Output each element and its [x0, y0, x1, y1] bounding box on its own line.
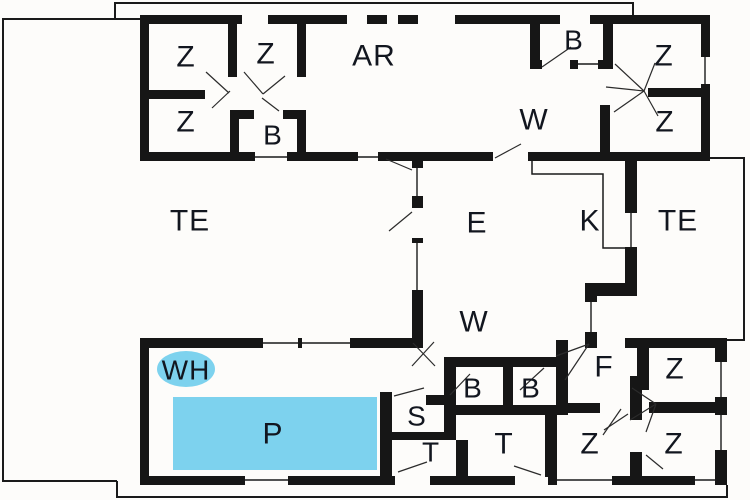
wall-segment	[298, 338, 302, 348]
wall-segment	[528, 152, 710, 161]
wall-segment	[701, 15, 710, 57]
label-room-s: S	[407, 401, 427, 432]
wall-segment	[570, 60, 578, 69]
wall-segment	[367, 15, 387, 24]
wall-segment	[648, 88, 701, 97]
label-kitchen-k: K	[579, 205, 600, 238]
wall-segment	[585, 296, 597, 302]
wall-segment	[297, 110, 306, 152]
wall-segment	[625, 158, 637, 213]
wall-segment	[557, 403, 600, 413]
wall-segment	[530, 60, 542, 69]
wall-segment	[287, 152, 358, 161]
wall-segment	[350, 338, 423, 348]
label-toilet-t1: T	[422, 437, 440, 468]
wall-segment	[412, 238, 423, 243]
wall-segment	[140, 476, 245, 485]
wall-segment	[456, 440, 468, 485]
label-terrace-te2: TE	[658, 205, 698, 238]
label-bedroom-z8: Z	[664, 428, 683, 461]
wall-segment	[297, 24, 306, 77]
wall-segment	[717, 476, 727, 485]
wall-segment	[612, 476, 695, 485]
wall-segment	[140, 338, 149, 485]
label-toilet-t2: T	[494, 428, 513, 461]
wall-segment	[149, 90, 205, 99]
wall-segment	[380, 432, 456, 440]
label-bedroom-z7: Z	[665, 353, 684, 386]
wall-segment	[637, 338, 649, 390]
wall-segment	[701, 84, 710, 161]
wall-segment	[545, 413, 557, 477]
label-bath-b2: B	[564, 25, 584, 56]
wall-segment	[548, 476, 557, 485]
label-entry-e: E	[466, 207, 487, 240]
label-bedroom-z3: Z	[176, 106, 195, 139]
wall-segment	[140, 15, 149, 161]
label-bedroom-z4: Z	[654, 40, 673, 73]
wall-segment	[430, 476, 515, 485]
label-bath-b4: B	[521, 373, 541, 404]
wall-segment	[625, 247, 637, 283]
label-bath-b3: B	[463, 373, 483, 404]
label-pool-p: P	[262, 418, 283, 451]
label-terrace-te1: TE	[170, 205, 210, 238]
label-bedroom-z1: Z	[176, 41, 195, 74]
label-whirlpool-wh: WH	[162, 355, 211, 386]
wall-segment	[412, 152, 423, 168]
label-bedroom-z6: Z	[580, 428, 599, 461]
label-bedroom-z2: Z	[256, 38, 275, 71]
wall-segment	[398, 15, 418, 24]
wall-segment	[590, 15, 710, 24]
wall-segment	[228, 24, 237, 77]
wall-segment	[715, 338, 727, 362]
floor-plan-page: Z Z AR Z B B Z Z W TE E K TE W WH P S T …	[0, 0, 750, 500]
wall-segment	[649, 402, 723, 413]
wall-segment	[503, 357, 513, 407]
label-room-ar: AR	[352, 40, 396, 73]
label-bath-b1: B	[263, 120, 283, 151]
wall-segment	[140, 15, 242, 24]
floor-plan-drawing: Z Z AR Z B B Z Z W TE E K TE W WH P S T …	[0, 0, 750, 500]
wall-segment	[556, 340, 568, 412]
wall-segment	[585, 283, 637, 296]
wall-segment	[268, 15, 347, 24]
wall-segment	[455, 15, 560, 24]
wall-segment	[230, 110, 254, 119]
wall-segment	[140, 152, 255, 161]
label-hall-f: F	[594, 351, 613, 384]
wall-segment	[140, 338, 263, 348]
wall-segment	[378, 152, 493, 161]
wall-segment	[600, 105, 610, 152]
wall-segment	[288, 476, 395, 485]
label-hall-w1: W	[519, 104, 548, 137]
label-bedroom-z5: Z	[655, 106, 674, 139]
wall-segment	[412, 196, 423, 208]
wall-segment	[603, 24, 613, 69]
label-hall-w2: W	[459, 306, 488, 339]
wall-segment	[585, 332, 597, 348]
wall-segment	[444, 357, 456, 440]
wall-segment	[630, 452, 642, 477]
